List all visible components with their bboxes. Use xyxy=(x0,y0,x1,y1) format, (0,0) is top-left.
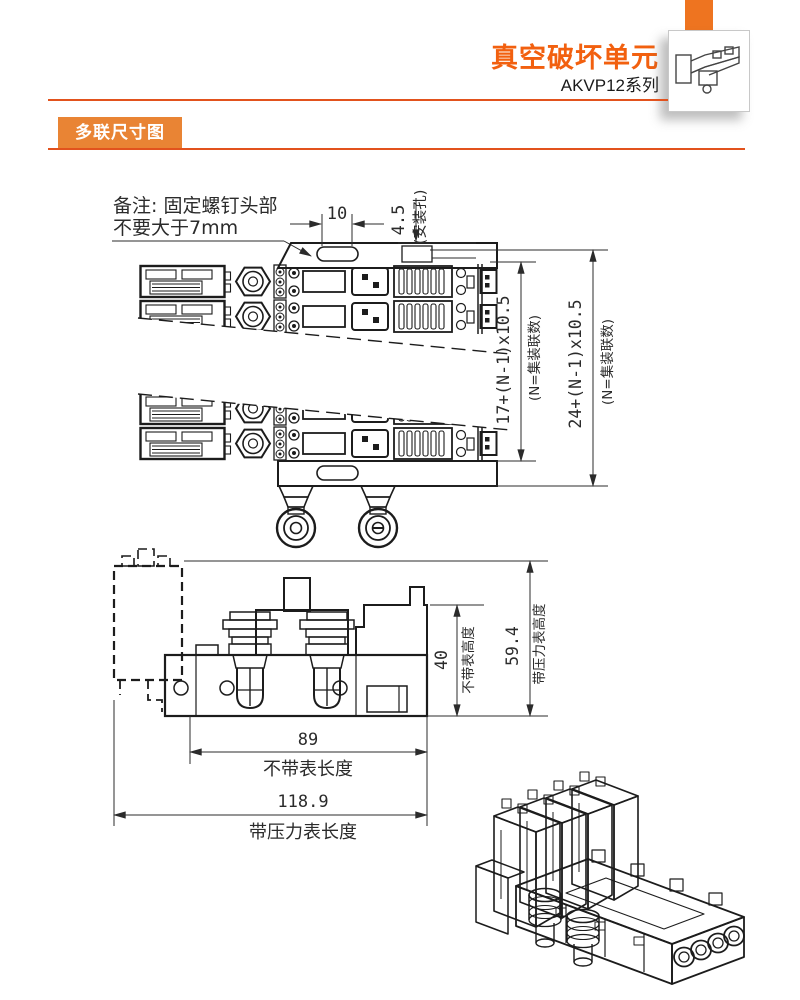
dim-mounting-hole-label: (安装孔) xyxy=(412,190,429,245)
note-line-2: 不要大于7mm xyxy=(113,217,238,239)
multi-unit-front-view: 备注: 固定螺钉头部 不要大于7mm 10 4.5 (安装孔) xyxy=(112,190,616,547)
iso-manifold-base xyxy=(516,850,744,984)
dim-slot-width: 10 xyxy=(327,204,347,224)
label-height-no-gauge: 不带表高度 xyxy=(460,626,477,694)
push-in-fitting xyxy=(300,612,354,708)
label-height-with-gauge: 带压力表高度 xyxy=(531,604,548,685)
gauge-port-fitting xyxy=(277,486,315,547)
dim-total-height-note: (N=集装联数) xyxy=(600,319,616,405)
dim-mounting-hole: 4.5 xyxy=(389,205,409,236)
dim-height-no-gauge: 40 xyxy=(432,650,451,670)
label-length-no-gauge: 不带表长度 xyxy=(263,759,353,780)
mounting-hole xyxy=(402,246,432,262)
dimension-drawings: 备注: 固定螺钉头部 不要大于7mm 10 4.5 (安装孔) xyxy=(0,0,800,1000)
dim-body-height: 17+(N-1)x10.5 xyxy=(494,295,513,424)
iso-gauge-slab xyxy=(572,772,638,900)
gauge-port-fitting xyxy=(359,486,397,547)
valve-station xyxy=(141,426,497,461)
label-length-with-gauge: 带压力表长度 xyxy=(249,822,357,843)
dim-total-height: 24+(N-1)x10.5 xyxy=(566,299,585,428)
dim-body-height-note: (N=集装联数) xyxy=(527,315,543,401)
dim-height-with-gauge: 59.4 xyxy=(503,626,522,666)
note-line-1: 备注: 固定螺钉头部 xyxy=(113,195,277,217)
mounting-slot xyxy=(317,247,358,261)
isometric-view xyxy=(476,772,744,984)
valve-station xyxy=(141,264,497,299)
dim-length-no-gauge: 89 xyxy=(298,730,318,750)
pressure-gauge-phantom xyxy=(114,549,182,712)
iso-fitting xyxy=(567,910,599,967)
dim-length-with-gauge: 118.9 xyxy=(277,792,328,812)
side-view: 40 不带表高度 59.4 带压力表高度 89 不带表长度 118.9 带压力表… xyxy=(114,549,548,843)
